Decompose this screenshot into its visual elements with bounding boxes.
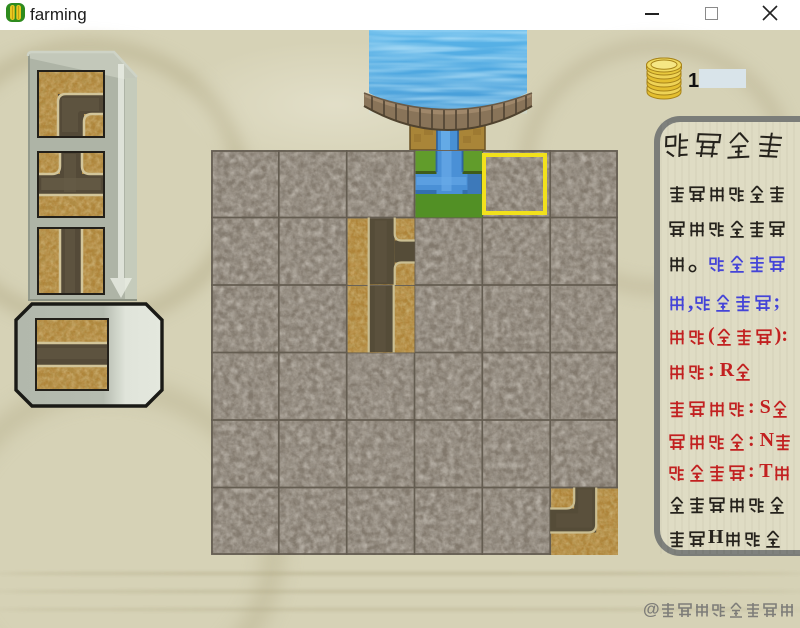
svg-text:1: 1 <box>688 70 699 92</box>
